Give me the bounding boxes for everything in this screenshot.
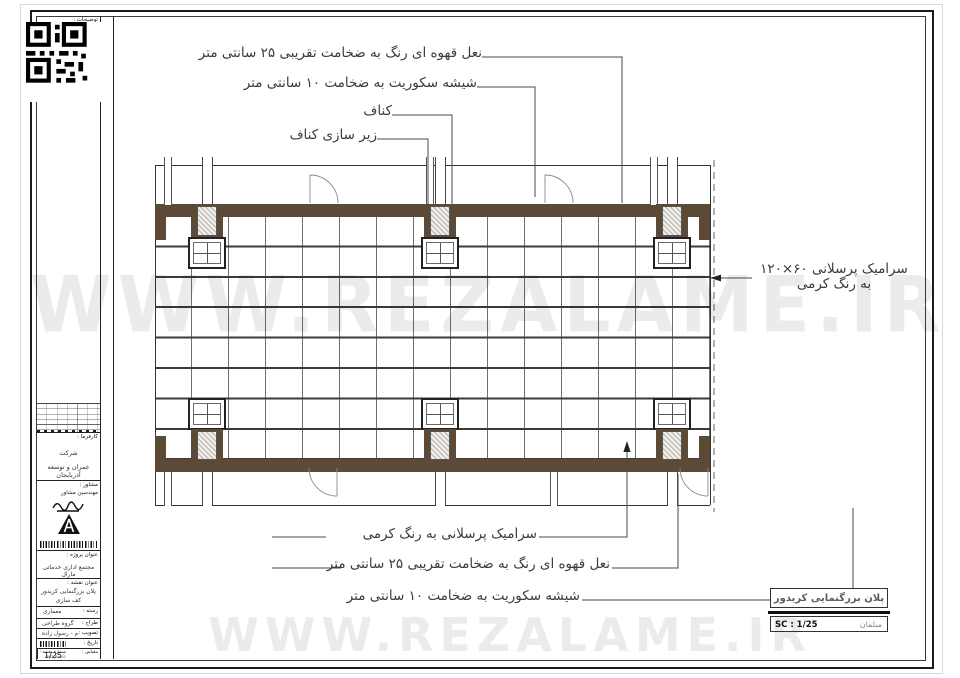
door-swings [309, 175, 708, 496]
leader-lines-layer [0, 0, 960, 678]
annotation-glass-top: شیشه سکوریت به ضخامت ۱۰ سانتی متر [175, 76, 477, 91]
drawing-sheet: توضیحات : کارفرما : شرکت عمران و توسعه آ… [0, 0, 960, 678]
footer-title: پلان بزرگنمایی کریدور [770, 588, 888, 608]
annotation-ceramic-right: سرامیک پرسلانی ۶۰×۱۲۰ به رنگ کرمی [748, 262, 920, 292]
arrowhead-icon [623, 275, 721, 452]
annotation-lintel-top: نعل قهوه ای رنگ به ضخامت تقریبی ۲۵ سانتی… [145, 46, 482, 61]
annotation-ceramic-right-line1: سرامیک پرسلانی ۶۰×۱۲۰ [748, 262, 920, 277]
footer-divider [768, 611, 890, 614]
annotation-knauf-substructure: زیر سازی کناف [262, 128, 377, 143]
annotation-lintel-bottom: نعل قهوه ای رنگ به ضخامت تقریبی ۲۵ سانتی… [280, 557, 610, 572]
footer-layer: مبلمان [860, 620, 882, 629]
annotation-ceramic-bottom: سرامیک پرسلانی به رنگ کرمی [320, 527, 537, 542]
annotation-glass-bottom: شیشه سکوریت به ضخامت ۱۰ سانتی متر [295, 589, 580, 604]
footer-scale: SC : 1/25 [775, 620, 818, 630]
annotation-ceramic-right-line2: به رنگ کرمی [748, 277, 920, 292]
footer-scale-row: SC : 1/25 مبلمان [770, 616, 888, 632]
annotation-knauf: کناف [332, 104, 392, 119]
